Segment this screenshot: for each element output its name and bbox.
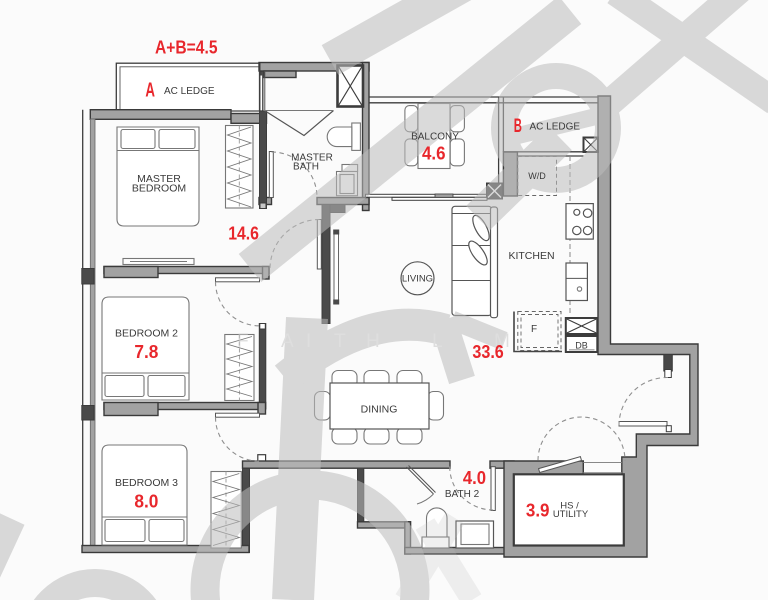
- svg-text:B: B: [514, 116, 522, 137]
- svg-text:BEDROOM 2: BEDROOM 2: [115, 328, 178, 340]
- svg-text:LIVING: LIVING: [402, 274, 433, 285]
- svg-text:BEDROOM 3: BEDROOM 3: [115, 477, 178, 489]
- svg-text:KITCHEN: KITCHEN: [508, 250, 554, 262]
- svg-text:A: A: [145, 79, 155, 101]
- svg-text:BEDROOM: BEDROOM: [132, 183, 186, 195]
- svg-text:I: I: [306, 331, 311, 352]
- svg-text:DB: DB: [575, 341, 588, 351]
- svg-text:4.0: 4.0: [463, 468, 486, 488]
- svg-text:3.9: 3.9: [526, 501, 550, 521]
- svg-text:T: T: [334, 331, 346, 352]
- svg-text:DINING: DINING: [361, 404, 398, 416]
- svg-text:BATH 2: BATH 2: [445, 489, 480, 500]
- svg-text:F: F: [531, 324, 537, 335]
- svg-text:7.8: 7.8: [134, 342, 158, 362]
- svg-text:L: L: [432, 331, 443, 352]
- svg-text:AC LEDGE: AC LEDGE: [530, 122, 581, 133]
- svg-text:4.6: 4.6: [422, 143, 446, 163]
- svg-text:UTILITY: UTILITY: [553, 509, 589, 520]
- svg-text:F: F: [237, 331, 249, 352]
- svg-text:H: H: [366, 331, 380, 352]
- svg-text:BALCONY: BALCONY: [411, 132, 459, 143]
- svg-text:BATH: BATH: [293, 162, 319, 173]
- svg-text:A: A: [281, 331, 294, 352]
- svg-text:8.0: 8.0: [134, 492, 158, 512]
- svg-text:14.6: 14.6: [228, 224, 259, 244]
- svg-text:A+B=4.5: A+B=4.5: [155, 38, 218, 58]
- svg-text:AC LEDGE: AC LEDGE: [164, 86, 215, 97]
- svg-text:W/D: W/D: [528, 171, 546, 181]
- svg-text:33.6: 33.6: [472, 342, 503, 362]
